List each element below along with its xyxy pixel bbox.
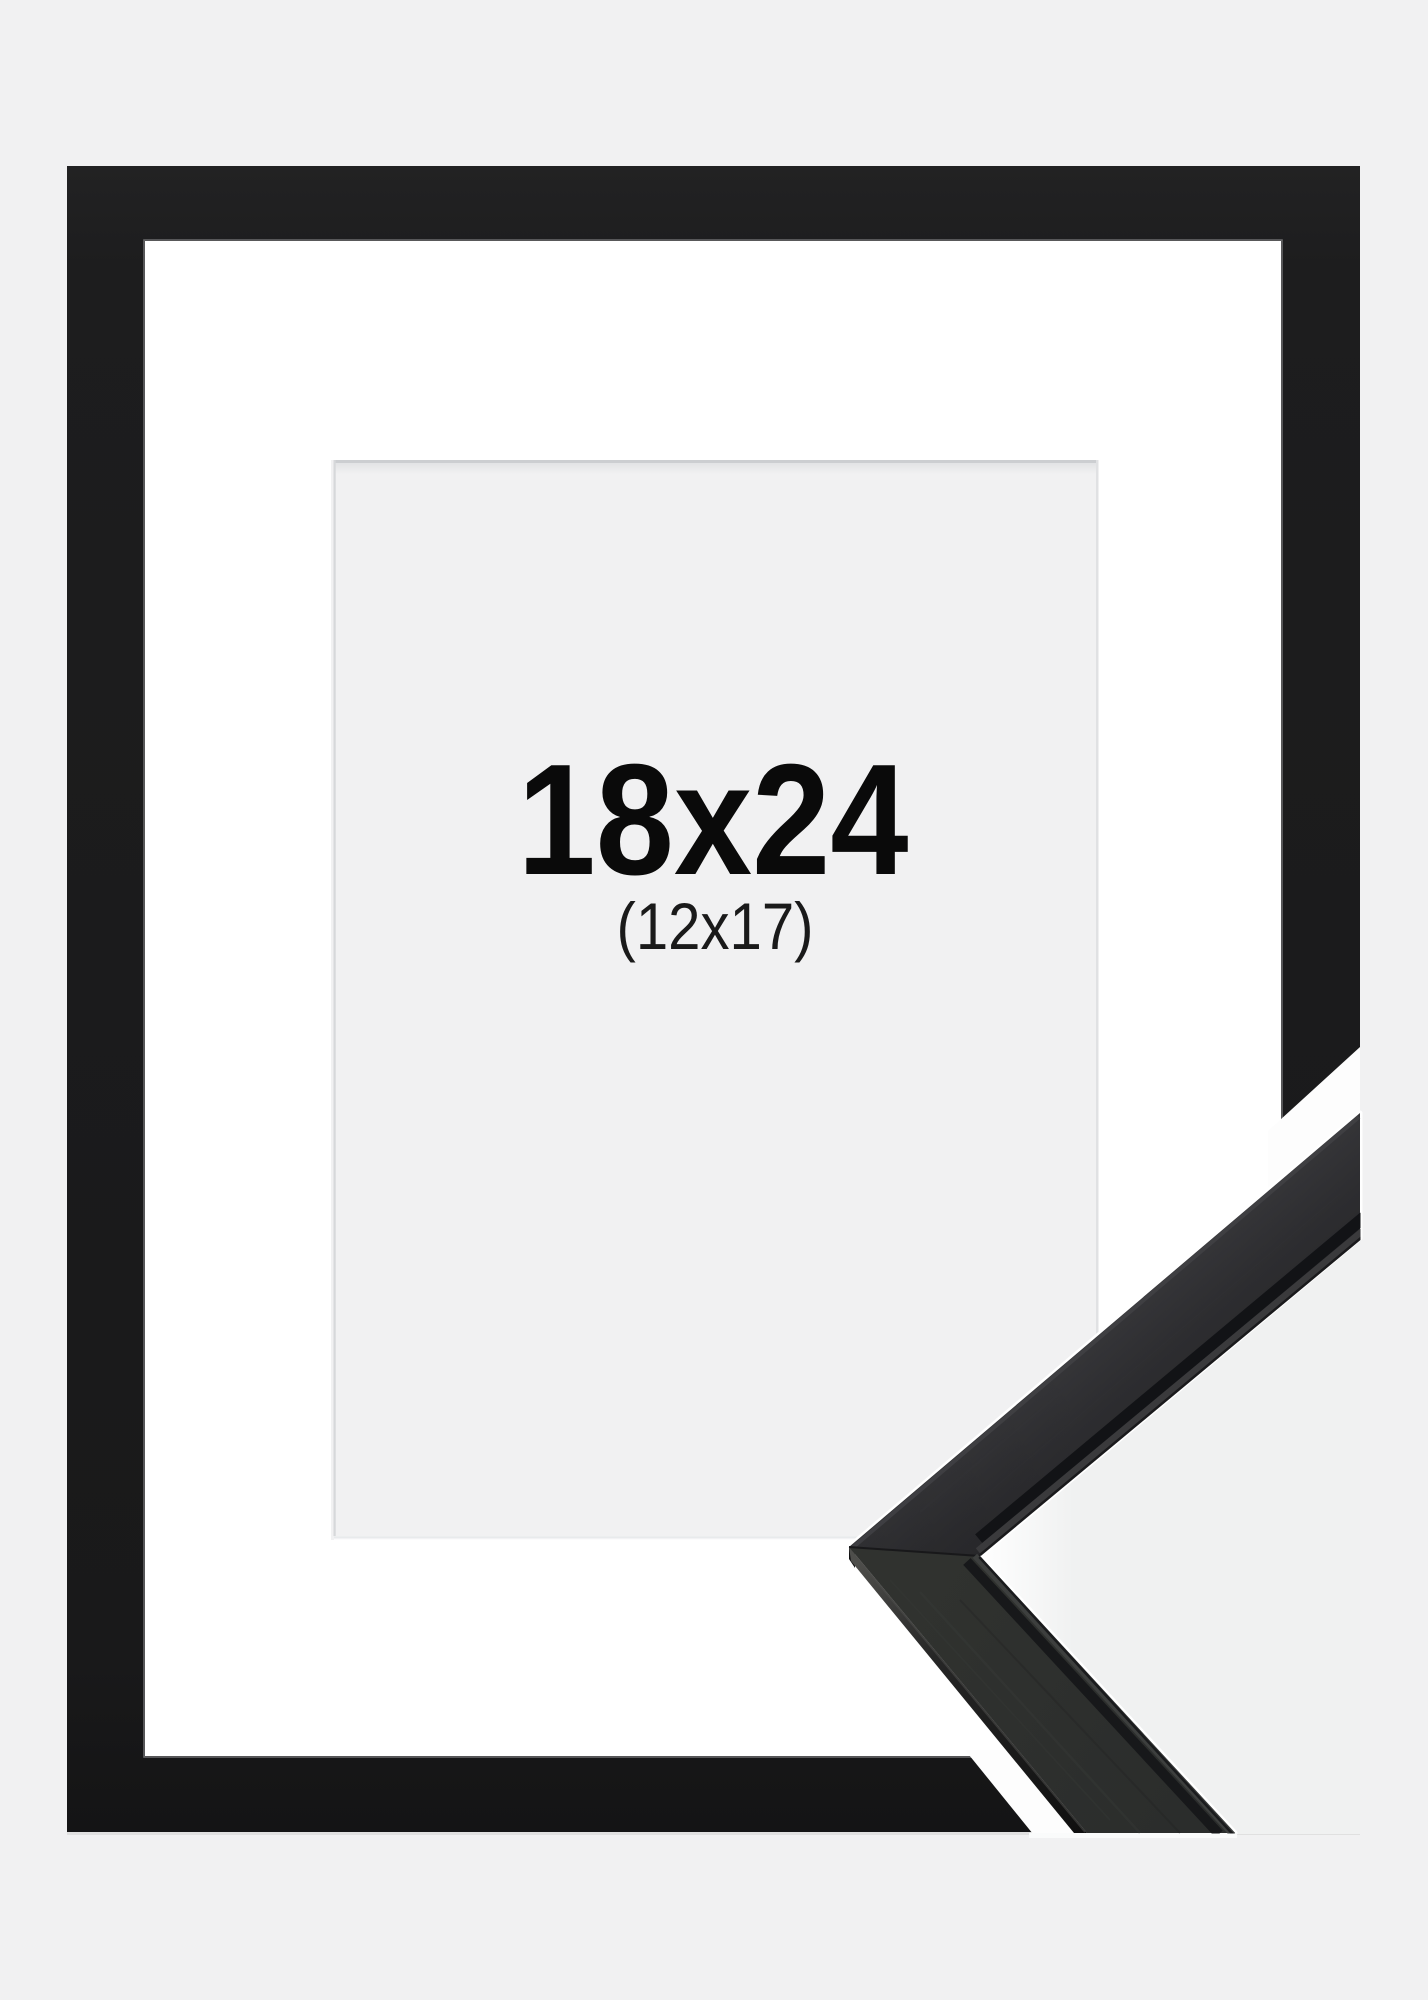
svg-text:(12x17): (12x17) bbox=[617, 889, 814, 963]
svg-text:18x24: 18x24 bbox=[518, 732, 909, 908]
